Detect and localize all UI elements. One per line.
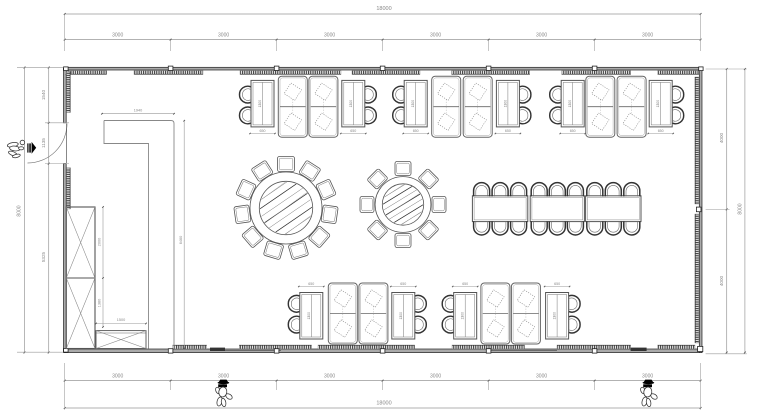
svg-text:18000: 18000 (376, 6, 391, 12)
svg-text:650: 650 (400, 282, 406, 286)
svg-text:5325: 5325 (41, 251, 46, 262)
svg-text:4000: 4000 (719, 275, 724, 286)
svg-text:3000: 3000 (536, 374, 547, 380)
svg-text:3000: 3000 (112, 33, 123, 39)
svg-text:3000: 3000 (218, 374, 229, 380)
svg-text:3000: 3000 (324, 33, 335, 39)
svg-text:650: 650 (554, 282, 560, 286)
svg-text:650: 650 (505, 129, 511, 133)
svg-text:650: 650 (260, 129, 266, 133)
svg-text:1500: 1500 (117, 318, 125, 322)
svg-text:3000: 3000 (430, 33, 441, 39)
svg-text:3000: 3000 (112, 374, 123, 380)
svg-text:3000: 3000 (536, 33, 547, 39)
svg-text:650: 650 (570, 129, 576, 133)
svg-text:18000: 18000 (376, 401, 391, 407)
svg-text:6460: 6460 (179, 236, 183, 244)
svg-text:3000: 3000 (642, 374, 653, 380)
svg-text:3000: 3000 (218, 33, 229, 39)
svg-text:2000: 2000 (98, 238, 102, 246)
svg-text:3000: 3000 (642, 33, 653, 39)
svg-text:1940: 1940 (134, 109, 142, 113)
svg-text:1380: 1380 (98, 299, 102, 307)
svg-text:650: 650 (462, 282, 468, 286)
svg-text:4000: 4000 (719, 132, 724, 143)
svg-text:3000: 3000 (430, 374, 441, 380)
svg-text:650: 650 (350, 129, 356, 133)
svg-text:1540: 1540 (41, 89, 46, 100)
svg-text:3000: 3000 (324, 374, 335, 380)
svg-text:8000: 8000 (16, 205, 22, 216)
svg-text:650: 650 (658, 129, 664, 133)
svg-text:8000: 8000 (737, 203, 743, 214)
svg-text:650: 650 (308, 282, 314, 286)
svg-text:1135: 1135 (41, 138, 46, 148)
svg-text:650: 650 (413, 129, 419, 133)
